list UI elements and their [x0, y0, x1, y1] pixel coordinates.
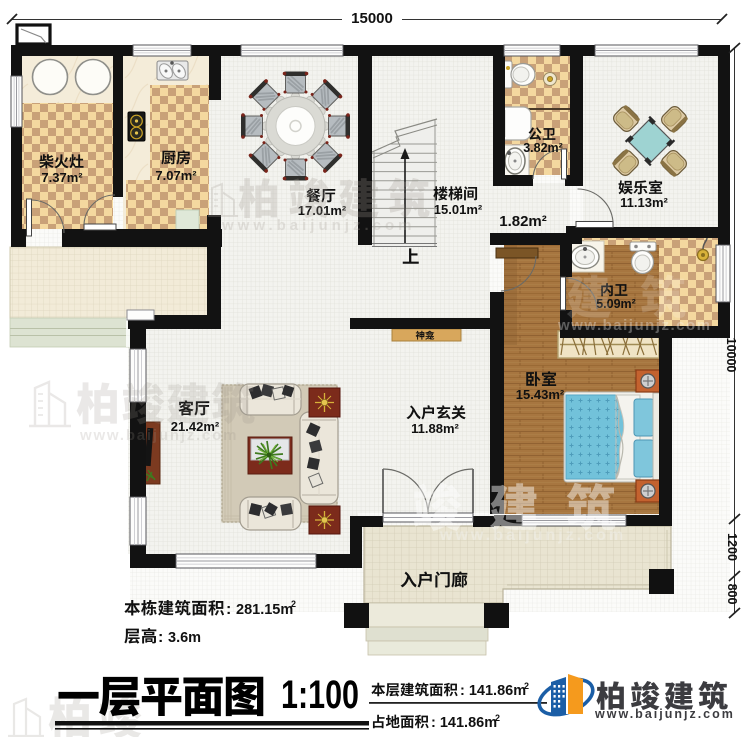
svg-text:www.baijunjz.com: www.baijunjz.com [594, 707, 735, 721]
svg-text:3.6m: 3.6m [168, 630, 201, 646]
svg-text:www.baijunjz.com: www.baijunjz.com [439, 527, 626, 544]
svg-text:2: 2 [291, 599, 296, 609]
svg-text:7.07m²: 7.07m² [155, 168, 197, 183]
svg-text:800: 800 [725, 584, 739, 605]
svg-text:: 141.86m: : 141.86m [460, 683, 526, 699]
svg-text:10000: 10000 [724, 338, 738, 373]
svg-text:15.01m²: 15.01m² [434, 202, 483, 217]
svg-text:15000: 15000 [351, 10, 393, 27]
svg-text:281.15m: 281.15m [236, 602, 293, 618]
svg-text:www.baijunjz.com: www.baijunjz.com [79, 427, 238, 444]
svg-text:www.baijunjz.com: www.baijunjz.com [221, 217, 415, 234]
svg-text:11.13m²: 11.13m² [620, 195, 668, 210]
svg-text::: : [226, 601, 231, 618]
svg-text:11.88m²: 11.88m² [411, 421, 459, 436]
svg-text:2: 2 [495, 713, 500, 723]
svg-text:1200: 1200 [725, 533, 739, 561]
svg-text:www.baijunjz.com: www.baijunjz.com [557, 317, 711, 334]
svg-text:2: 2 [524, 681, 529, 691]
svg-text:3.82m²: 3.82m² [523, 141, 563, 155]
svg-text::: : [158, 629, 163, 646]
svg-text:: 141.86m: : 141.86m [431, 715, 497, 731]
svg-text:1.82m²: 1.82m² [499, 213, 547, 230]
svg-text:1:100: 1:100 [281, 673, 359, 717]
svg-text:7.37m²: 7.37m² [41, 170, 83, 185]
svg-text:15.43m²: 15.43m² [516, 387, 565, 402]
